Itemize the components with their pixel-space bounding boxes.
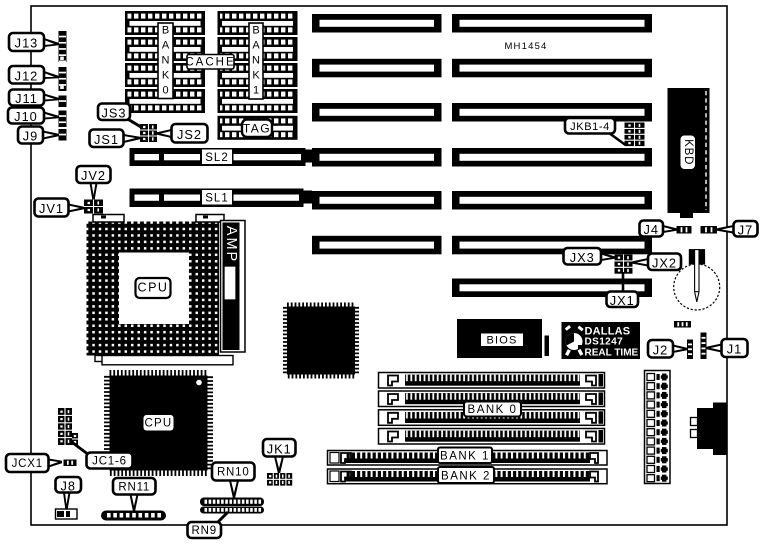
svg-text:BANK 1: BANK 1	[440, 451, 490, 463]
svg-text:JX1: JX1	[610, 293, 635, 308]
svg-text:MH1454: MH1454	[504, 41, 547, 52]
svg-text:REAL TIME: REAL TIME	[585, 348, 639, 359]
svg-text:JV1: JV1	[39, 201, 64, 216]
svg-text:A: A	[162, 40, 170, 52]
svg-text:K: K	[162, 70, 170, 82]
svg-text:JV2: JV2	[81, 168, 106, 183]
svg-text:A: A	[252, 40, 260, 52]
svg-text:J7: J7	[738, 222, 754, 237]
svg-text:RN11: RN11	[118, 481, 150, 493]
svg-text:B: B	[162, 25, 169, 37]
svg-text:J13: J13	[15, 36, 39, 51]
svg-text:J12: J12	[15, 68, 39, 83]
svg-text:B: B	[252, 25, 259, 37]
svg-text:JC1-6: JC1-6	[92, 456, 127, 468]
svg-text:0: 0	[162, 85, 168, 97]
svg-text:JS1: JS1	[94, 132, 119, 147]
svg-text:J10: J10	[14, 109, 38, 124]
svg-text:K: K	[252, 70, 260, 82]
svg-text:CPU: CPU	[145, 418, 173, 430]
svg-text:CPU: CPU	[138, 281, 169, 295]
svg-text:JS3: JS3	[101, 105, 126, 120]
svg-text:CACHE: CACHE	[185, 57, 235, 69]
svg-text:JX2: JX2	[652, 255, 677, 270]
svg-text:KBD: KBD	[682, 139, 694, 165]
svg-text:J11: J11	[15, 91, 38, 106]
svg-text:N: N	[162, 55, 170, 67]
svg-text:DS1247: DS1247	[585, 337, 624, 348]
svg-text:TAG: TAG	[243, 122, 271, 136]
svg-text:1: 1	[253, 85, 259, 97]
svg-text:JX3: JX3	[570, 250, 595, 265]
svg-text:JS2: JS2	[177, 127, 202, 142]
svg-text:SL1: SL1	[205, 193, 228, 205]
svg-text:AMP: AMP	[223, 226, 239, 263]
svg-text:J8: J8	[60, 478, 76, 493]
svg-text:BANK 0: BANK 0	[468, 404, 518, 416]
svg-text:J9: J9	[23, 129, 39, 144]
svg-text:JCX1: JCX1	[12, 458, 43, 470]
svg-text:J2: J2	[653, 342, 669, 357]
svg-text:J4: J4	[643, 222, 659, 237]
svg-text:BIOS: BIOS	[486, 335, 517, 347]
svg-text:RN10: RN10	[217, 467, 250, 479]
svg-text:RN9: RN9	[192, 525, 217, 537]
svg-text:SL2: SL2	[205, 152, 228, 164]
svg-text:BANK 2: BANK 2	[441, 471, 491, 483]
svg-text:J1: J1	[727, 342, 743, 357]
svg-text:JKB1-4: JKB1-4	[570, 121, 610, 133]
svg-text:JK1: JK1	[267, 441, 292, 456]
svg-text:N: N	[252, 55, 260, 67]
